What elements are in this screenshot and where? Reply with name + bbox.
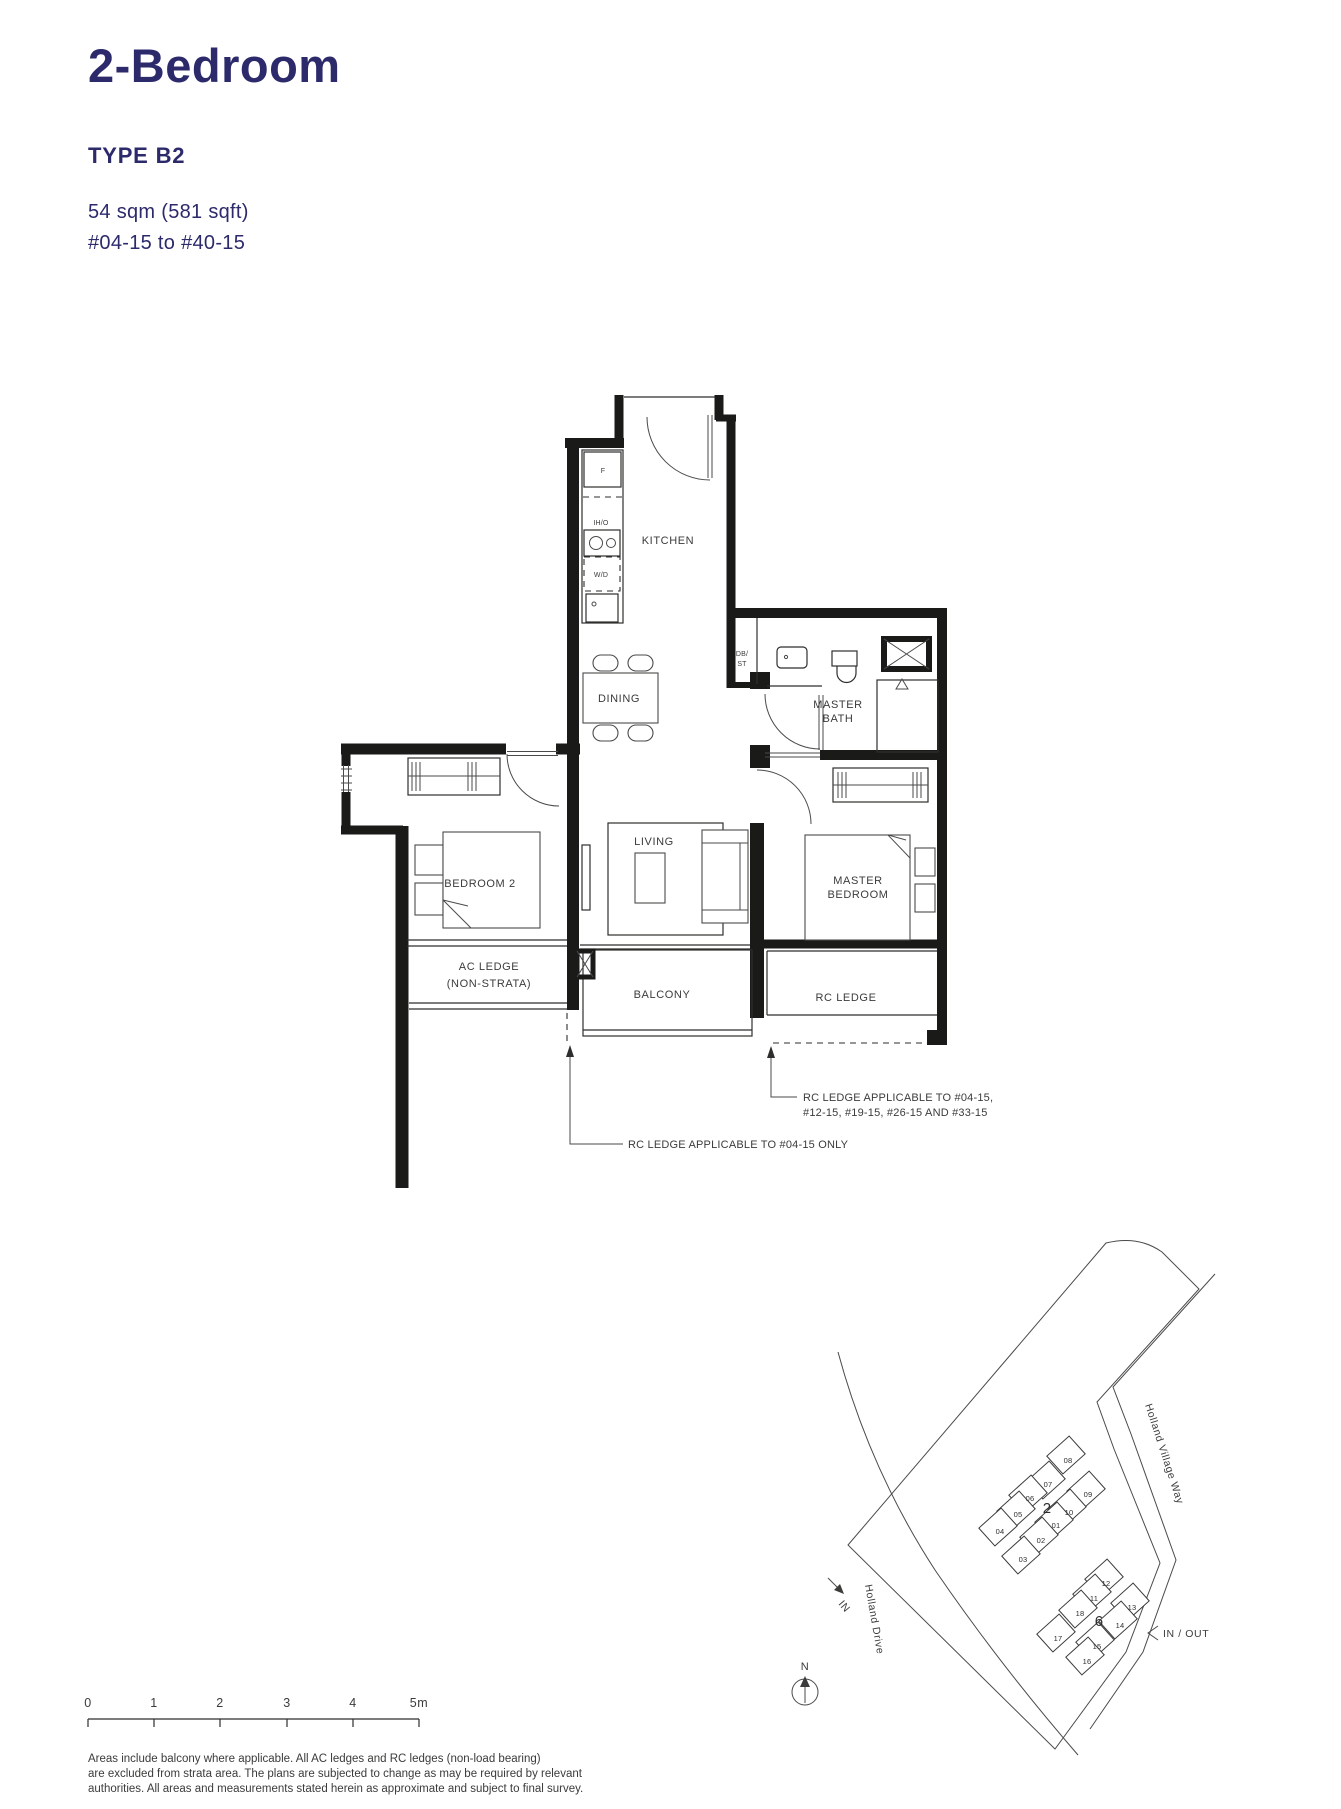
site-unit-14: 14 — [1116, 1621, 1125, 1630]
master-bath-label-2: BATH — [823, 713, 854, 725]
site-unit-18: 18 — [1076, 1609, 1085, 1618]
site-unit-03: 03 — [1019, 1555, 1028, 1564]
disclaimer-line-3: authorities. All areas and measurements … — [88, 1782, 628, 1797]
scale-3: 3 — [283, 1696, 291, 1710]
unit-stack-range: #04-15 to #40-15 — [88, 232, 245, 255]
walls — [341, 395, 947, 1188]
site-unit-16: 16 — [1083, 1657, 1092, 1666]
master-bedroom-furniture — [757, 768, 935, 940]
kitchen-label: KITCHEN — [642, 535, 694, 547]
master-bedroom-label-1: MASTER — [833, 875, 882, 887]
site-unit-07: 07 — [1044, 1480, 1053, 1489]
bedroom2-label: BEDROOM 2 — [444, 878, 515, 890]
disclaimer-line-1: Areas include balcony where applicable. … — [88, 1752, 628, 1767]
site-unit-15: 15 — [1093, 1642, 1102, 1651]
floor-plan: F IH/O W/D DB/ ST — [340, 335, 1030, 1195]
site-block6: 12 11 13 18 14 17 15 16 6 — [1037, 1559, 1149, 1675]
db-label-2: ST — [737, 661, 747, 668]
street-holland-drive: Holland Drive — [862, 1583, 886, 1655]
master-bedroom-label-2: BEDROOM — [827, 889, 888, 901]
site-block6-label: 6 — [1095, 1613, 1104, 1630]
site-map: 08 07 06 05 04 09 10 01 02 03 2 12 11 13… — [780, 1230, 1260, 1775]
site-unit-11: 11 — [1090, 1594, 1098, 1603]
scale-1: 1 — [150, 1696, 158, 1710]
site-unit-06: 06 — [1026, 1494, 1035, 1503]
north-compass: N — [792, 1661, 818, 1705]
disclaimer-line-2: are excluded from strata area. The plans… — [88, 1767, 628, 1782]
living-label: LIVING — [634, 836, 674, 848]
unit-area-label: 54 sqm (581 sqft) — [88, 201, 249, 224]
site-in-out-label: IN / OUT — [1163, 1628, 1209, 1640]
ac-ledge-label-1: AC LEDGE — [459, 961, 519, 973]
site-unit-01: 01 — [1052, 1521, 1061, 1530]
site-block2-label: 2 — [1043, 1500, 1052, 1517]
note-rc-multi-1: RC LEDGE APPLICABLE TO #04-15, — [803, 1092, 993, 1104]
page-title: 2-Bedroom — [88, 38, 341, 93]
scale-5m: 5m — [410, 1696, 429, 1710]
site-unit-13: 13 — [1128, 1603, 1137, 1612]
street-holland-village-way: Holland Village Way — [1142, 1402, 1186, 1506]
hob-label: IH/O — [593, 520, 609, 527]
dining-label: DINING — [598, 693, 640, 705]
db-label-1: DB/ — [736, 651, 748, 658]
site-unit-12: 12 — [1102, 1579, 1111, 1588]
unit-type-label: TYPE B2 — [88, 143, 185, 169]
site-unit-04: 04 — [996, 1527, 1005, 1536]
balcony-label: BALCONY — [634, 989, 691, 1001]
master-bath-label-1: MASTER — [813, 699, 862, 711]
scale-2: 2 — [216, 1696, 224, 1710]
site-unit-08: 08 — [1064, 1456, 1073, 1465]
site-unit-02: 02 — [1037, 1536, 1046, 1545]
site-unit-05: 05 — [1014, 1510, 1023, 1519]
washer-label: W/D — [594, 572, 608, 579]
ac-ledge-label-2: (NON-STRATA) — [447, 978, 531, 990]
fridge-label: F — [601, 468, 605, 475]
entry-door — [624, 397, 715, 480]
site-block2: 08 07 06 05 04 09 10 01 02 03 2 — [979, 1436, 1105, 1574]
site-streets: Holland Village Way Holland Drive IN / O… — [828, 1402, 1209, 1655]
floorplan-page: 2-Bedroom TYPE B2 54 sqm (581 sqft) #04-… — [0, 0, 1341, 1809]
site-unit-10: 10 — [1065, 1508, 1074, 1517]
master-bath-fixtures — [765, 639, 938, 757]
rc-ledge-label: RC LEDGE — [815, 992, 876, 1004]
north-label: N — [801, 1661, 810, 1673]
bedroom2-furniture — [341, 752, 559, 929]
site-unit-09: 09 — [1084, 1490, 1093, 1499]
kitchen-fixtures: F IH/O W/D — [582, 450, 623, 623]
wall-stub — [927, 1030, 943, 1045]
disclaimer: Areas include balcony where applicable. … — [88, 1752, 628, 1798]
site-unit-17: 17 — [1054, 1634, 1063, 1643]
scale-0: 0 — [84, 1696, 92, 1710]
scale-bar: 0 1 2 3 4 5m — [80, 1688, 440, 1738]
site-in-label: IN — [836, 1598, 853, 1615]
note-rc-multi-2: #12-15, #19-15, #26-15 AND #33-15 — [803, 1107, 988, 1119]
scale-4: 4 — [349, 1696, 357, 1710]
plan-notes: RC LEDGE APPLICABLE TO #04-15, #12-15, #… — [566, 1045, 993, 1151]
note-rc-single: RC LEDGE APPLICABLE TO #04-15 ONLY — [628, 1139, 849, 1151]
